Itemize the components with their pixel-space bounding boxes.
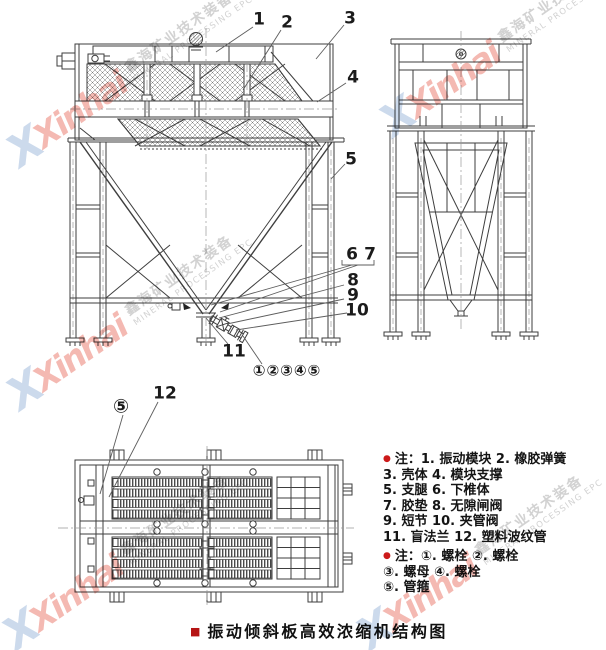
plate-module-band-b	[112, 537, 272, 579]
callout-10: 10	[345, 303, 369, 320]
callout-6: 6	[346, 247, 358, 264]
note-line: 7. 胶垫 8. 无隙闸阀	[383, 499, 601, 515]
feet-side	[384, 332, 538, 340]
figure-title: ■振动倾斜板高效浓缩机结构图	[190, 618, 448, 642]
note-line: ●注：1. 振动模块 2. 橡胶弹簧	[383, 452, 601, 468]
plate-module-band-a	[112, 477, 272, 519]
callout-4: 4	[347, 70, 359, 87]
red-bullet-icon: ●	[383, 551, 391, 561]
drawing-sheet: 1 2 3 4 5 6 7 8 9 10 11 ①②③④⑤ ⑤ 12 ●注：1.…	[0, 0, 606, 650]
note-line: 5. 支腿 6. 下椎体	[383, 483, 601, 499]
note-line: 9. 短节 10. 夹管阀	[383, 514, 601, 530]
note-line: ③. 螺母 ④. 螺栓	[383, 565, 601, 581]
plan-callout-5: ⑤	[113, 398, 129, 417]
notes-block-parts: ●注：1. 振动模块 2. 橡胶弹簧 3. 壳体 4. 模块支撑 5. 支腿 6…	[383, 452, 601, 545]
note-line: 11. 盲法兰 12. 塑料波纹管	[383, 530, 601, 546]
callout-2: 2	[281, 15, 293, 32]
vibrator-motor-icon	[189, 33, 203, 51]
figure-title-text: 振动倾斜板高效浓缩机结构图	[207, 622, 448, 641]
note-line: ●注：①. 螺栓 ②. 螺栓	[383, 549, 601, 565]
callout-circled-row: ①②③④⑤	[253, 364, 322, 379]
callout-7: 7	[364, 247, 376, 264]
callout-1: 1	[253, 12, 265, 29]
notes-block-fasteners: ●注：①. 螺栓 ②. 螺栓 ③. 螺母 ④. 螺栓 ⑤. 管箍	[383, 549, 601, 596]
discharge-assembly	[168, 303, 249, 343]
callout-3: 3	[344, 11, 356, 28]
callout-11: 11	[222, 344, 246, 361]
note-line: 3. 壳体 4. 模块支撑	[383, 468, 601, 484]
feet-front	[66, 338, 340, 346]
plan-callout-12: 12	[153, 386, 177, 403]
hose-clamp-fitting	[79, 480, 95, 572]
note-line: ⑤. 管箍	[383, 580, 601, 596]
red-square-icon: ■	[190, 625, 200, 638]
callout-5: 5	[345, 152, 357, 169]
side-view	[384, 31, 538, 340]
plan-view	[58, 446, 354, 606]
red-bullet-icon: ●	[383, 454, 391, 464]
front-view	[57, 28, 344, 346]
